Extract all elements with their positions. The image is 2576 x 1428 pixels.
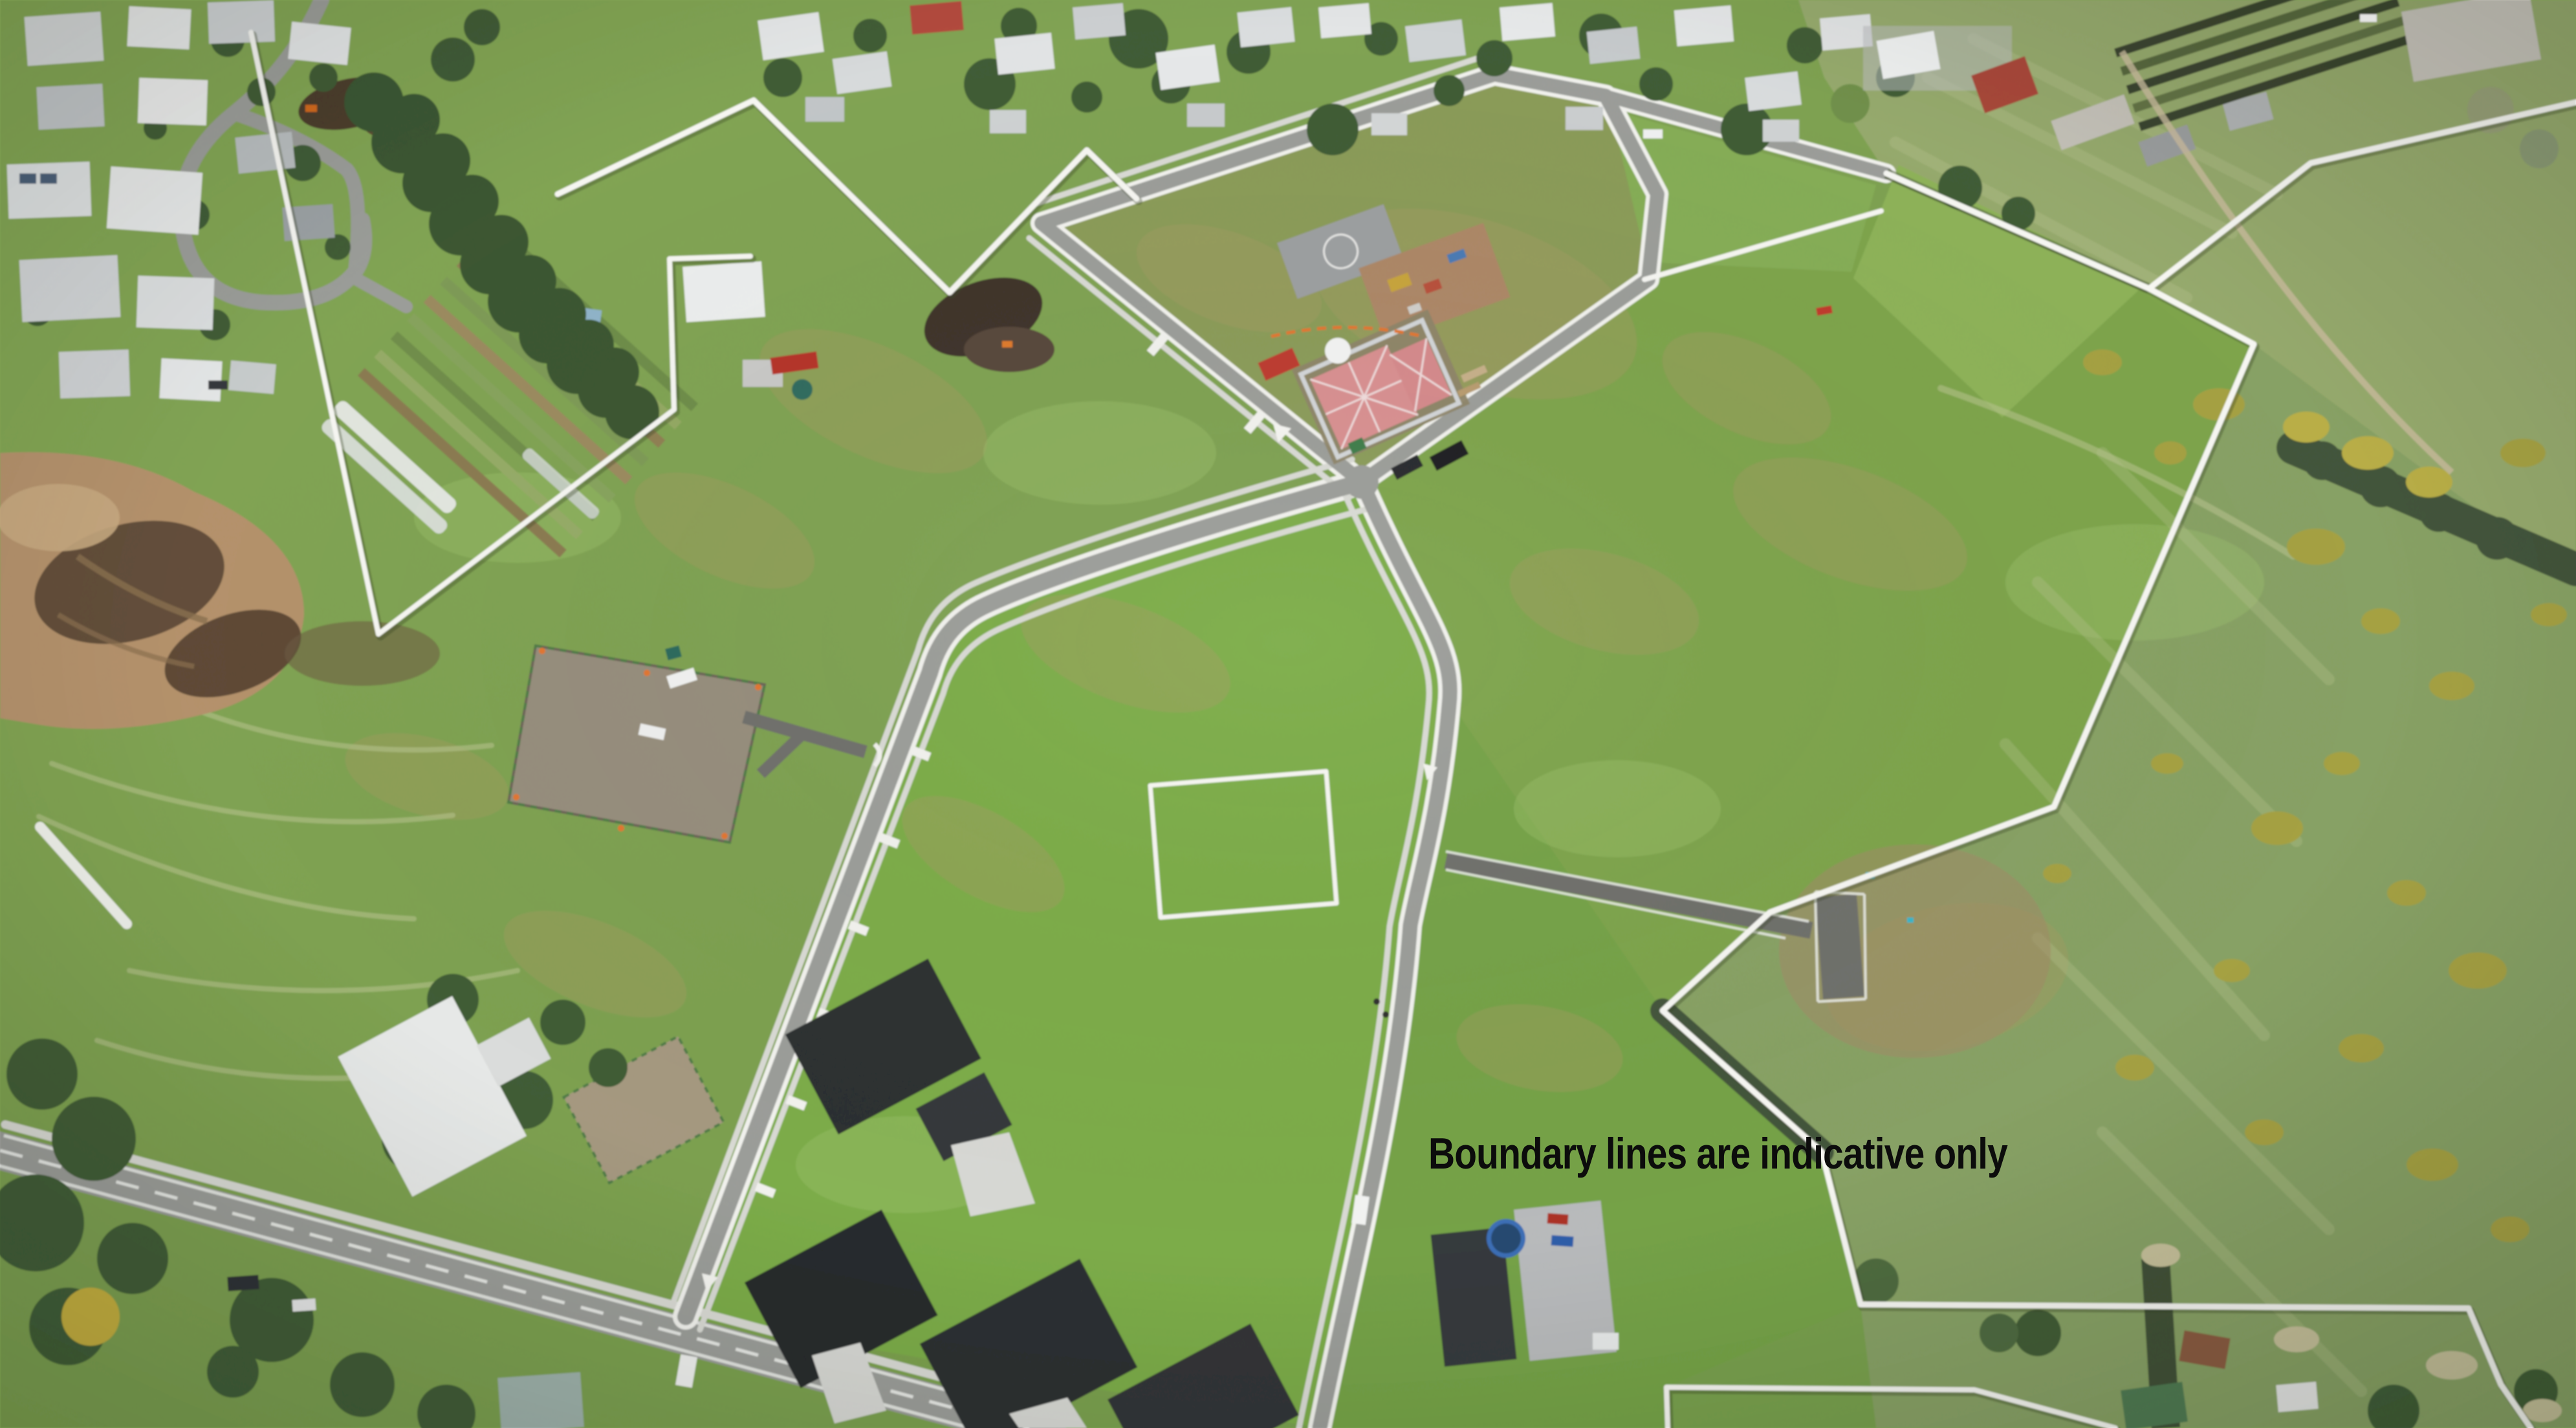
photo-grain	[0, 0, 2576, 1428]
aerial-photo-stage: Boundary lines are indicative only	[0, 0, 2576, 1428]
aerial-photo: Boundary lines are indicative only	[0, 0, 2576, 1428]
boundary-disclaimer-text: Boundary lines are indicative only	[1428, 1129, 2008, 1178]
scene	[0, 0, 2576, 1428]
